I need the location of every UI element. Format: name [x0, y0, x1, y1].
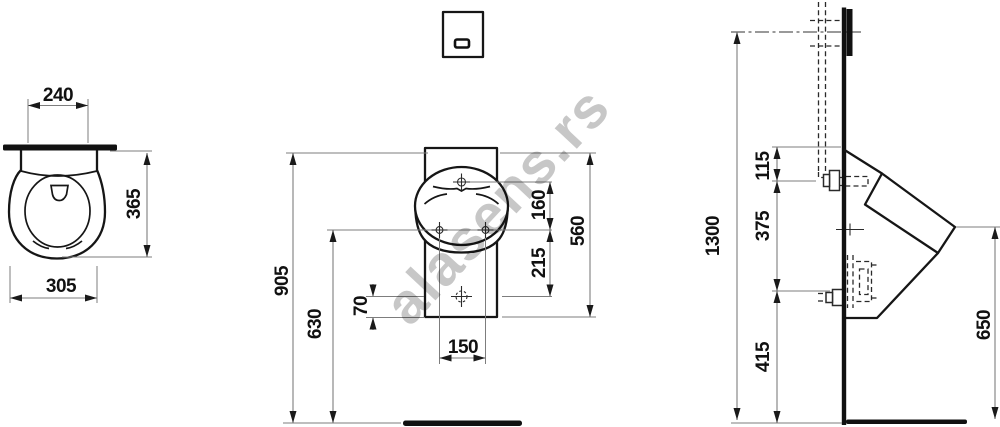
dim-115: 115 — [753, 150, 774, 180]
dim-905: 905 — [272, 265, 293, 296]
dim-305: 305 — [46, 276, 77, 297]
dim-365: 365 — [124, 188, 145, 219]
top-view: 240 365 305 — [3, 85, 152, 303]
flush-plate-front-view — [443, 12, 483, 57]
inlet-spigot-hidden — [846, 177, 868, 187]
outlet-bolt-head — [826, 293, 833, 303]
dim-415: 415 — [753, 341, 774, 372]
wall-plate-top-view — [3, 145, 117, 151]
sensor-window — [455, 40, 469, 48]
floor-line-front-view — [403, 421, 522, 427]
inlet-fitting — [830, 171, 840, 191]
outlet-trap-hidden — [856, 262, 872, 302]
floor-line-side-view — [846, 420, 967, 425]
inlet-fitting-nut — [824, 175, 830, 187]
dim-1300: 1300 — [703, 216, 724, 256]
urinal-rim-side-view — [865, 174, 955, 254]
dim-630: 630 — [305, 309, 326, 339]
urinal-dimension-drawing: 240 365 305 — [0, 0, 1000, 427]
dim-150: 150 — [448, 337, 478, 358]
dim-240: 240 — [43, 85, 73, 106]
flush-plate-side-view — [847, 9, 853, 56]
front-view: 905 630 70 150 160 215 560 — [272, 12, 596, 426]
dim-70: 70 — [351, 296, 372, 316]
wall-section-line — [842, 8, 846, 426]
side-view: 1300 115 375 415 650 — [703, 2, 1000, 425]
outlet-socket-hidden — [860, 269, 869, 295]
technical-drawing-page: 240 365 305 — [0, 0, 1000, 427]
bowl-outline-top-view — [9, 151, 105, 259]
dim-375: 375 — [753, 210, 774, 241]
urinal-top-slope — [844, 150, 882, 174]
dim-215: 215 — [529, 247, 550, 278]
dim-560: 560 — [568, 216, 589, 246]
dim-650: 650 — [974, 310, 995, 340]
